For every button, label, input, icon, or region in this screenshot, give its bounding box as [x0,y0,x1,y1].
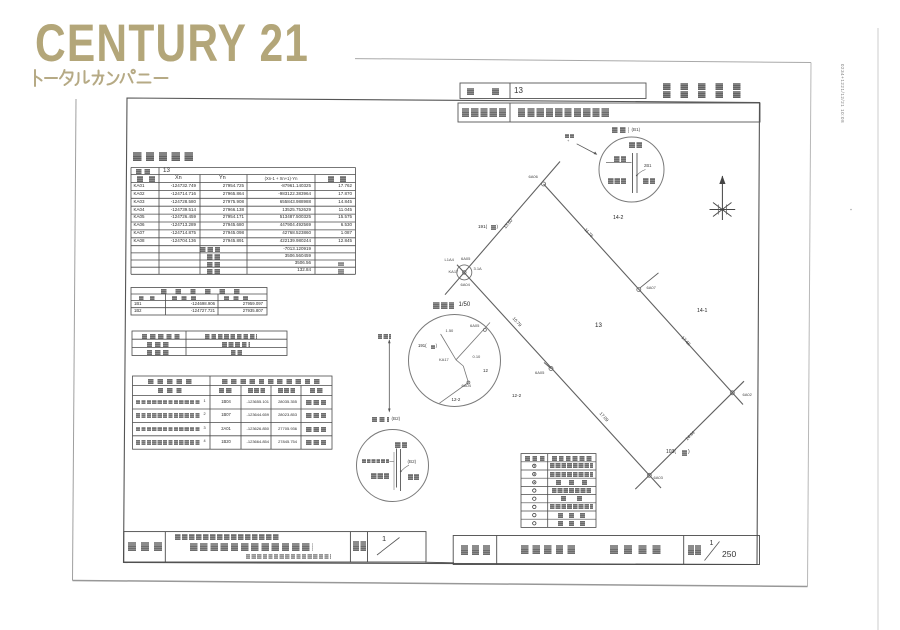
svg-text:0234+1221/12/21 10:08: 0234+1221/12/21 10:08 [840,64,845,123]
